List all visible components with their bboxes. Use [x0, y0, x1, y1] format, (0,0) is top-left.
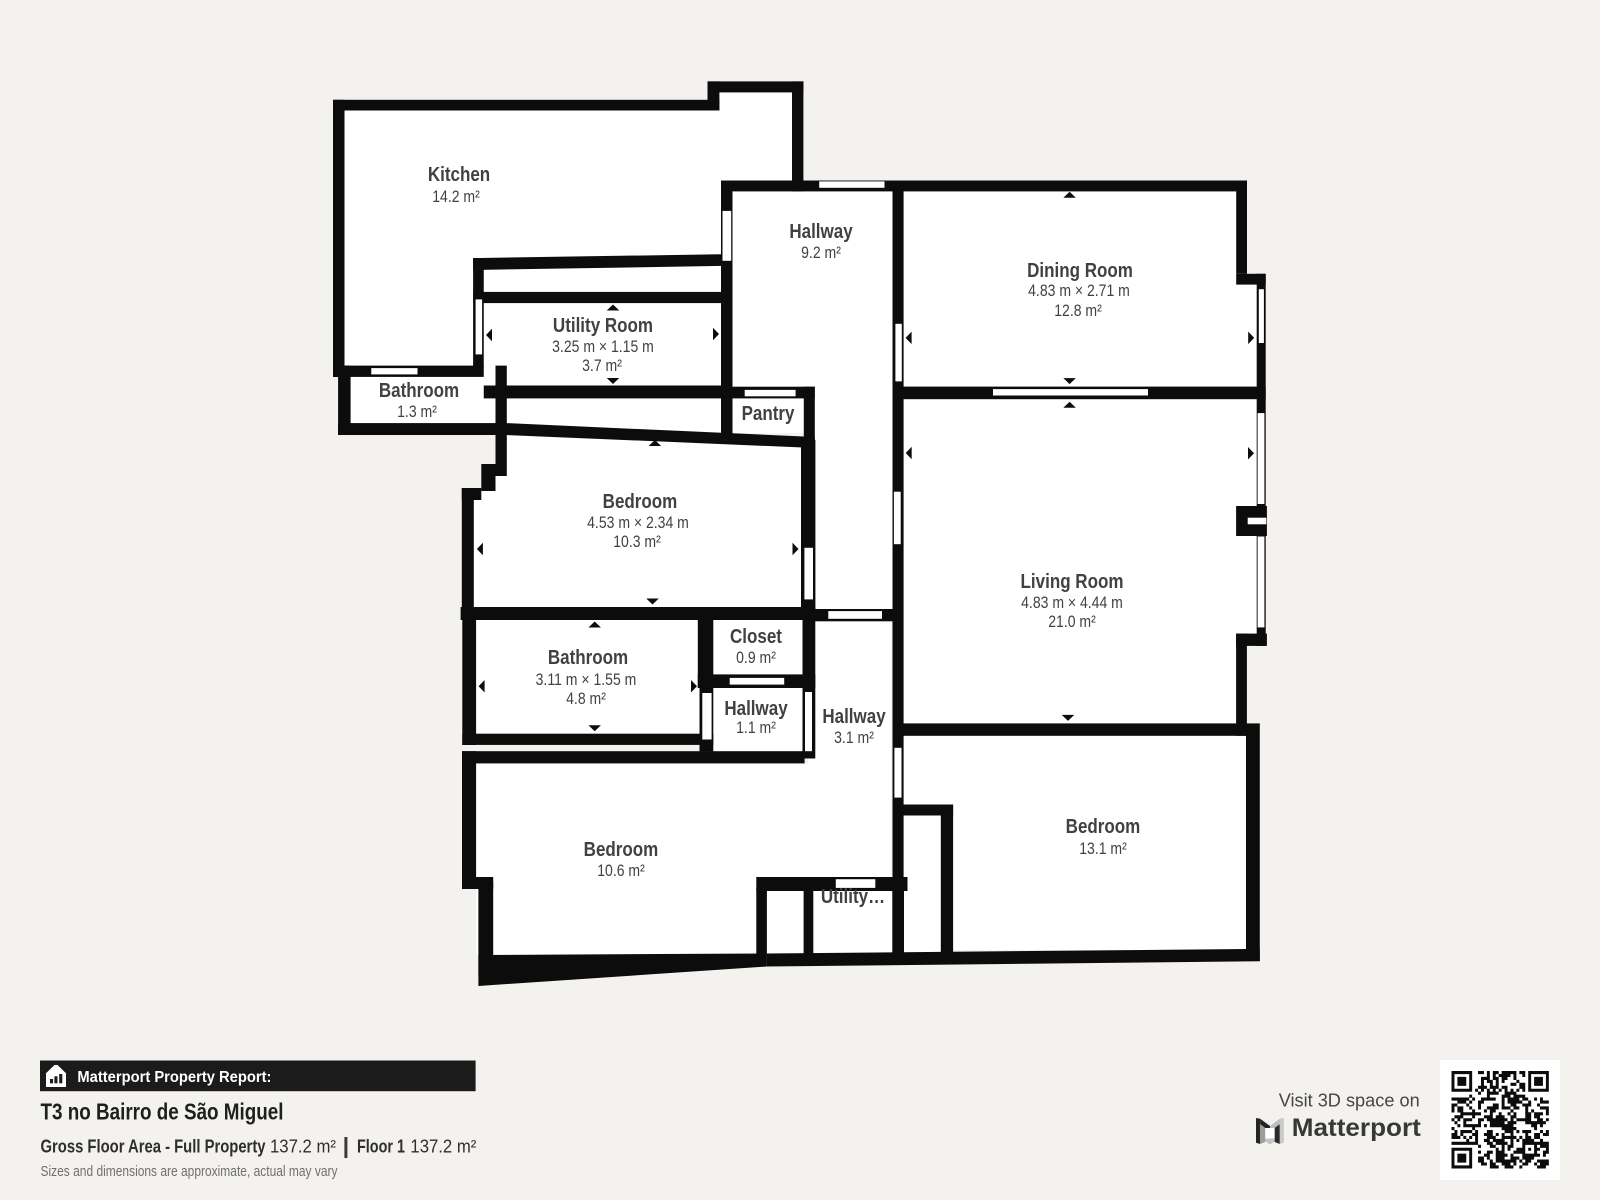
svg-text:10.3 m²: 10.3 m² [613, 533, 661, 551]
svg-text:1.3 m²: 1.3 m² [397, 403, 437, 421]
svg-text:Utility Room: Utility Room [553, 315, 653, 337]
svg-text:13.1 m²: 13.1 m² [1079, 840, 1127, 858]
svg-text:Hallway: Hallway [822, 706, 886, 728]
svg-text:137.2 m²: 137.2 m² [270, 1137, 336, 1157]
svg-text:Dining Room: Dining Room [1027, 260, 1133, 282]
svg-text:4.83 m × 2.71 m: 4.83 m × 2.71 m [1028, 282, 1130, 300]
svg-text:Bathroom: Bathroom [548, 647, 628, 669]
svg-text:Floor 1: Floor 1 [357, 1137, 405, 1157]
svg-text:Bathroom: Bathroom [379, 380, 459, 402]
svg-text:Utility…: Utility… [821, 886, 885, 908]
svg-text:Closet: Closet [730, 626, 782, 648]
svg-text:Bedroom: Bedroom [603, 491, 678, 513]
svg-text:1.1 m²: 1.1 m² [736, 719, 776, 737]
svg-text:12.8 m²: 12.8 m² [1054, 302, 1102, 320]
svg-text:Bedroom: Bedroom [1066, 816, 1141, 838]
svg-text:4.8 m²: 4.8 m² [566, 690, 606, 708]
svg-text:Sizes and dimensions are appro: Sizes and dimensions are approximate, ac… [41, 1164, 339, 1180]
svg-text:T3 no Bairro de São Miguel: T3 no Bairro de São Miguel [41, 1099, 284, 1125]
svg-text:0.9 m²: 0.9 m² [736, 649, 776, 667]
svg-text:3.25 m × 1.15 m: 3.25 m × 1.15 m [552, 338, 654, 356]
svg-text:Hallway: Hallway [724, 698, 788, 720]
svg-text:4.53 m × 2.34 m: 4.53 m × 2.34 m [587, 514, 689, 532]
svg-text:Pantry: Pantry [742, 403, 796, 425]
svg-text:3.7 m²: 3.7 m² [582, 357, 622, 375]
svg-text:3.11 m × 1.55 m: 3.11 m × 1.55 m [536, 671, 637, 689]
svg-text:Living Room: Living Room [1021, 571, 1124, 593]
svg-text:3.1 m²: 3.1 m² [834, 729, 874, 747]
svg-text:9.2 m²: 9.2 m² [801, 244, 841, 262]
svg-text:Kitchen: Kitchen [428, 164, 490, 186]
svg-text:Bedroom: Bedroom [584, 839, 659, 861]
svg-text:21.0 m²: 21.0 m² [1048, 613, 1096, 631]
svg-text:Matterport: Matterport [1292, 1114, 1422, 1142]
svg-text:Gross Floor Area - Full Proper: Gross Floor Area - Full Property [41, 1137, 266, 1157]
svg-text:137.2 m²: 137.2 m² [410, 1137, 476, 1157]
svg-text:Matterport Property Report:: Matterport Property Report: [77, 1069, 271, 1086]
svg-text:Hallway: Hallway [789, 221, 853, 243]
svg-text:Visit 3D space on: Visit 3D space on [1279, 1090, 1420, 1111]
svg-text:4.83 m × 4.44 m: 4.83 m × 4.44 m [1021, 594, 1123, 612]
svg-text:14.2 m²: 14.2 m² [432, 188, 480, 206]
svg-text:10.6 m²: 10.6 m² [597, 862, 645, 880]
